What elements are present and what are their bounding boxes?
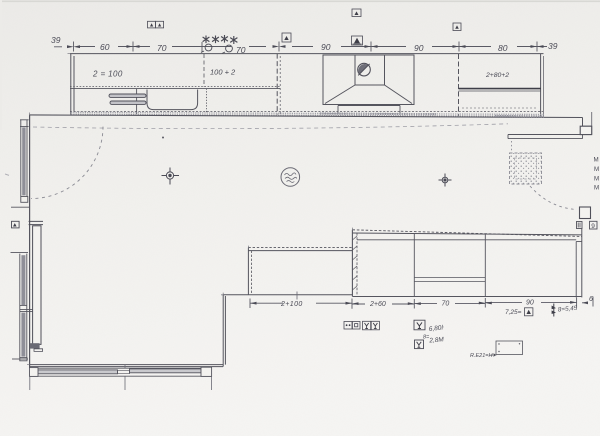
svg-text:M: M [594,185,599,192]
svg-text:80: 80 [498,43,508,53]
svg-text:2+80+2: 2+80+2 [485,72,509,79]
svg-text:6: 6 [589,296,593,303]
svg-text:R.E21=H: R.E21=H [470,353,492,359]
svg-text:2+60: 2+60 [369,301,386,308]
svg-text:2,8M: 2,8M [428,336,445,344]
svg-text:70: 70 [157,43,167,53]
svg-text:90: 90 [414,43,424,53]
svg-text:M: M [594,176,599,183]
svg-text:M: M [594,166,599,173]
svg-text:90: 90 [526,300,534,307]
svg-text:7,25=: 7,25= [505,309,522,316]
svg-text:60: 60 [100,42,110,52]
svg-text:70: 70 [442,301,450,308]
svg-text:39: 39 [51,35,61,45]
svg-text:100 + 2: 100 + 2 [210,68,236,77]
svg-text:M: M [594,157,599,164]
svg-text:2+100: 2+100 [280,301,303,308]
svg-text:90: 90 [321,42,331,52]
svg-text:39: 39 [548,41,558,51]
svg-text:9: 9 [591,223,595,230]
svg-text:2 = 100: 2 = 100 [92,70,123,79]
